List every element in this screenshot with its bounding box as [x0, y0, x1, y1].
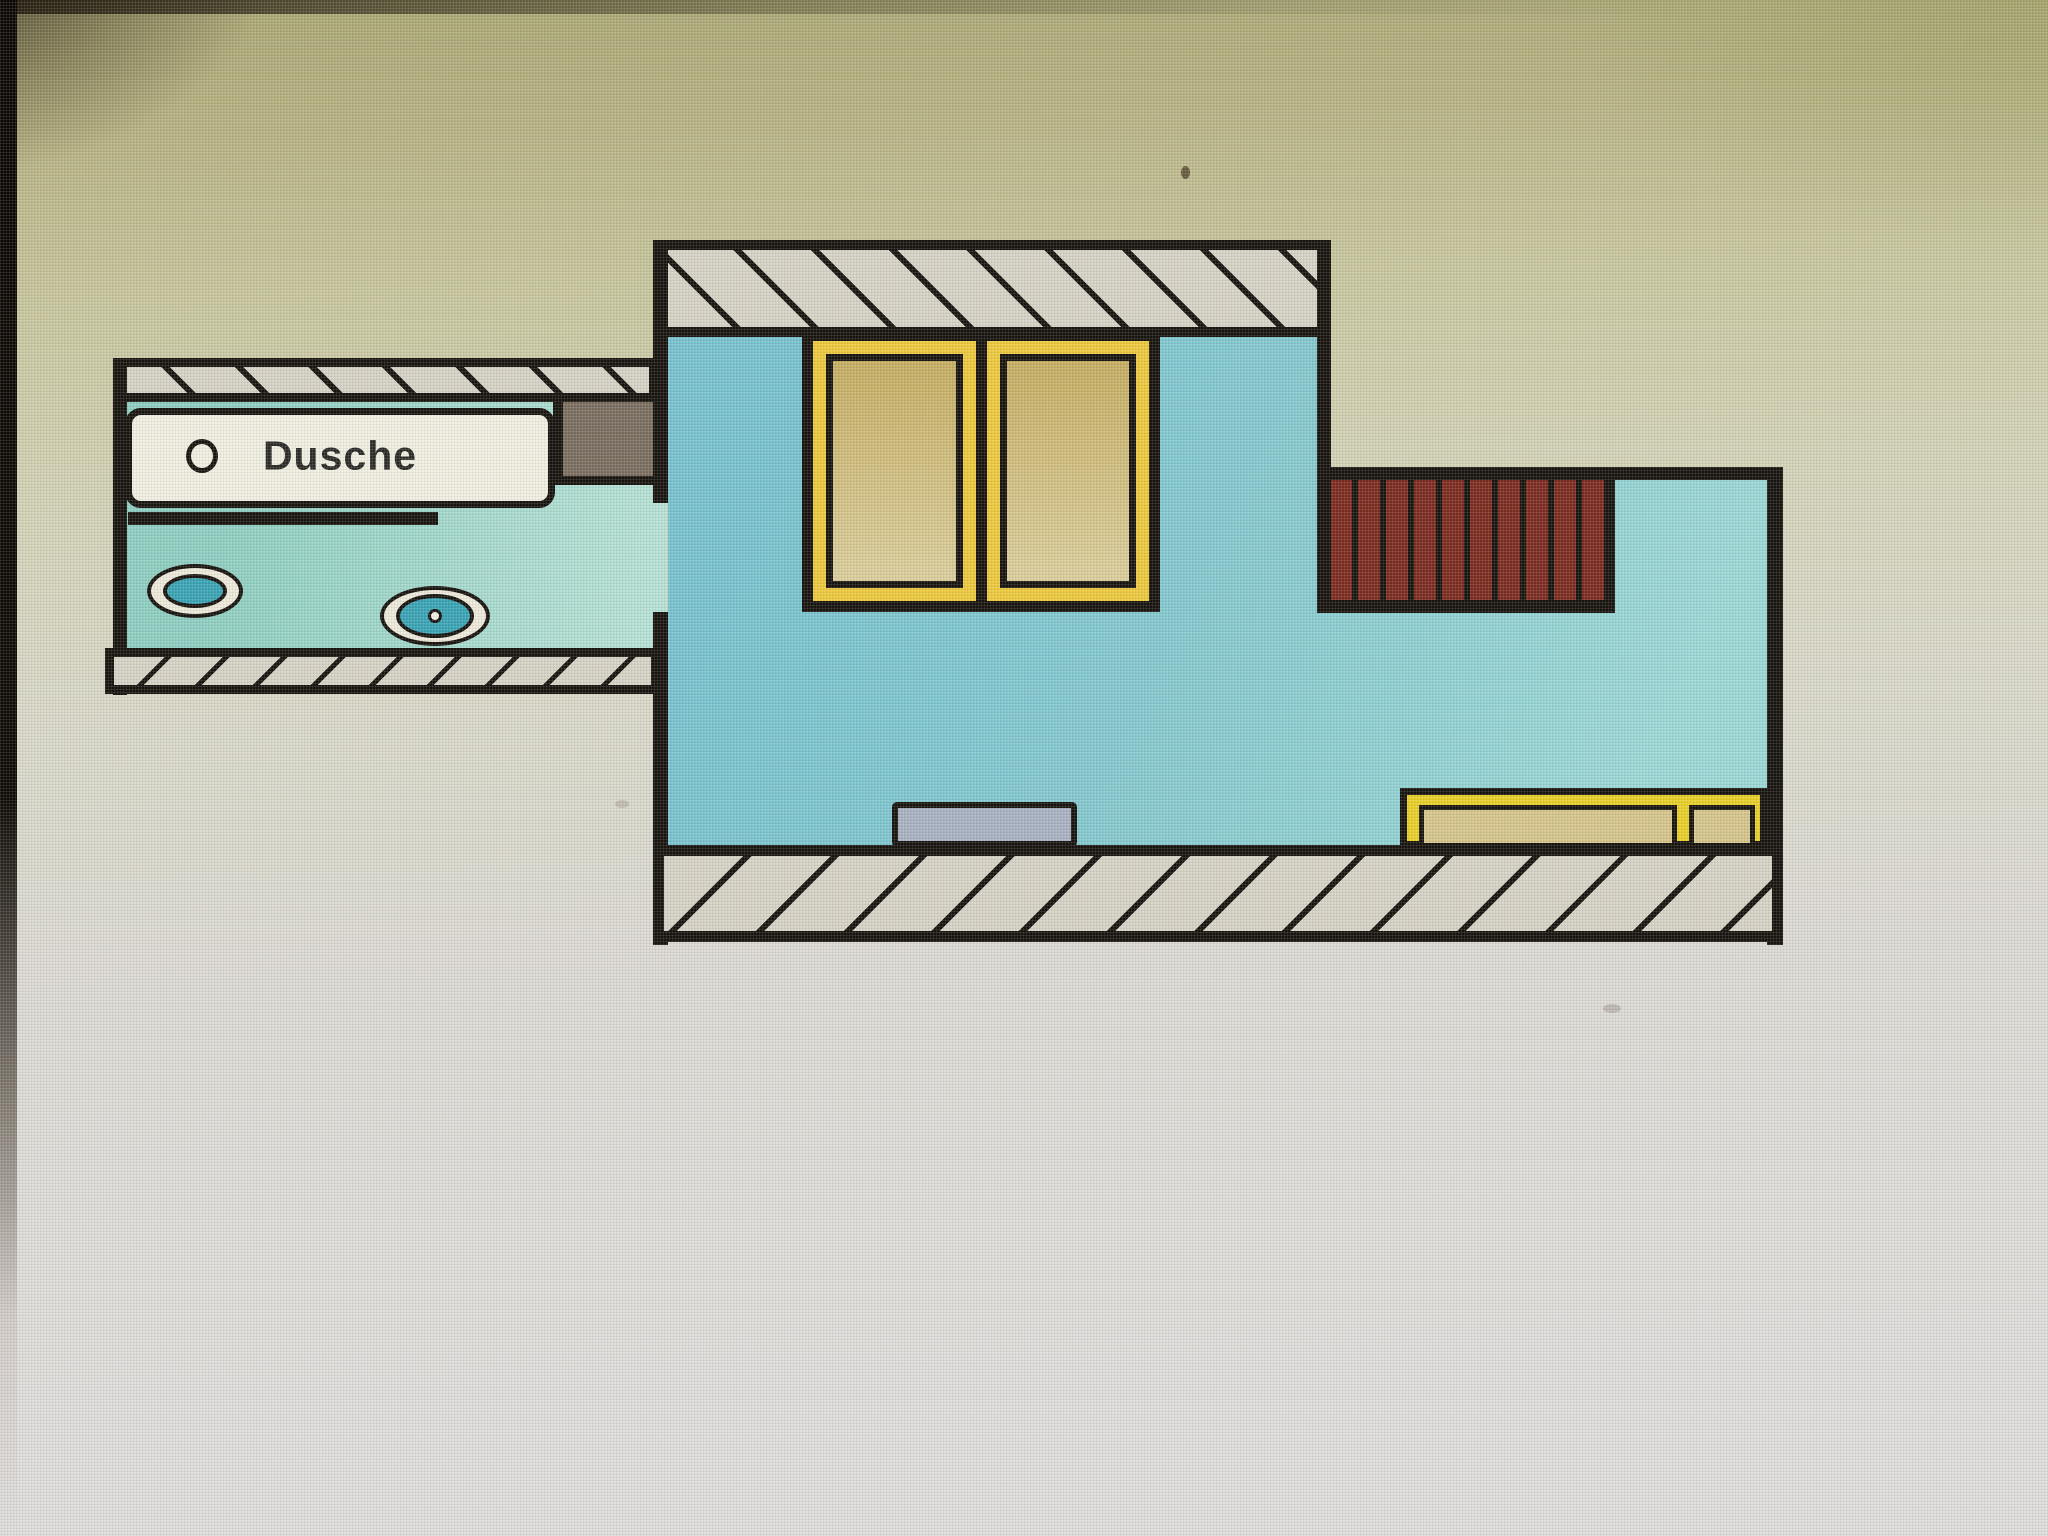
bottom-wall [653, 845, 1783, 942]
toilet-icon [380, 586, 490, 646]
photo-top-shadow [0, 0, 2048, 14]
left-wall-upper [653, 240, 668, 503]
wardrobe-unit [802, 330, 1160, 612]
sideboard [1400, 788, 1767, 848]
screen-smudge-small [615, 800, 629, 808]
floor-plan: Dusche [0, 0, 2048, 1536]
stairs [1330, 480, 1615, 600]
shower-label: Dusche [132, 433, 548, 480]
stairs-bottom-edge [1317, 600, 1615, 613]
toilet-bowl [396, 594, 474, 638]
shower-partition-wall [128, 512, 438, 525]
stairs-top-wall [1317, 467, 1783, 480]
duct-block [553, 400, 653, 485]
wardrobe-door-left [813, 341, 976, 601]
screen-smudge [1603, 1004, 1621, 1013]
sink-basin [163, 574, 227, 608]
screen-speck [1181, 166, 1190, 179]
shower-tray: Dusche [125, 408, 555, 508]
wardrobe-door-right [987, 341, 1150, 601]
sideboard-section-small [1689, 805, 1755, 848]
stairwell-wall [1317, 240, 1331, 613]
bathroom-left-wall [113, 358, 127, 695]
screen-photo: { "screen": { "description": "Photograph… [0, 0, 2048, 1536]
sink-icon [147, 564, 243, 618]
toilet-flush-icon [428, 609, 442, 623]
sideboard-section-large [1419, 805, 1677, 848]
bathroom-top-wall [113, 358, 658, 402]
wardrobe-door-left-panel [826, 354, 963, 588]
bathroom-bottom-wall [105, 648, 660, 694]
shelf [892, 802, 1077, 847]
wardrobe-door-right-panel [1000, 354, 1137, 588]
top-wall [653, 240, 1330, 337]
photo-edge-shadow [0, 0, 17, 1536]
